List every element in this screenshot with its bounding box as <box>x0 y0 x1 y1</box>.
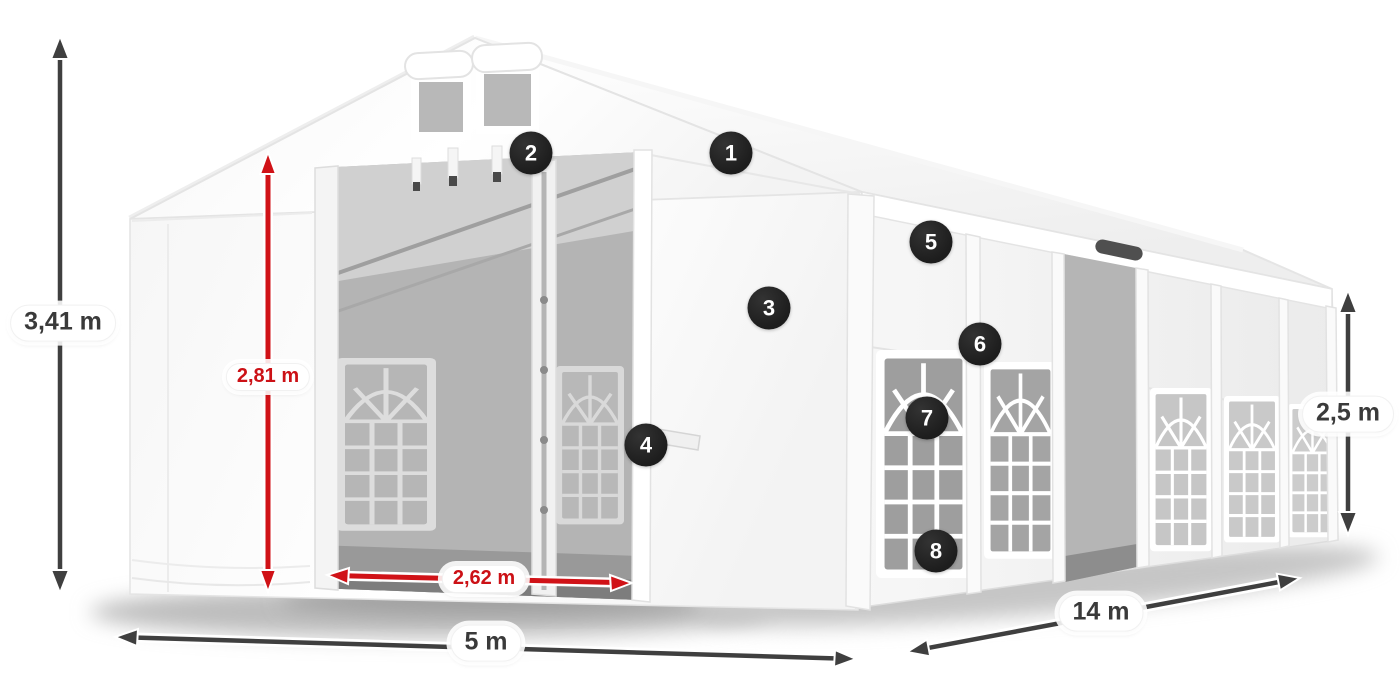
front-entrance-interior <box>315 150 700 602</box>
callout-badge-1[interactable]: 1 <box>710 132 753 175</box>
callout-badge-8[interactable]: 8 <box>915 530 958 573</box>
tent-illustration <box>0 0 1400 700</box>
callout-badge-5[interactable]: 5 <box>910 221 953 264</box>
vent-window <box>415 78 467 136</box>
rolled-cover <box>404 50 473 80</box>
side-window <box>984 362 1057 559</box>
interior-window <box>336 358 436 531</box>
interior-window <box>556 366 624 524</box>
dimension-label-ridge-height: 3,41 m <box>10 305 116 342</box>
side-doorway <box>1064 254 1137 582</box>
side-window <box>1150 388 1212 551</box>
dimension-label-side-height: 2,5 m <box>1302 396 1394 433</box>
callout-badge-6[interactable]: 6 <box>959 323 1002 366</box>
rolled-cover <box>471 42 542 73</box>
callout-badge-2[interactable]: 2 <box>510 132 553 175</box>
side-window <box>1224 396 1280 542</box>
dimension-label-entrance-width: 2,62 m <box>442 565 526 593</box>
dimension-label-tent-length: 14 m <box>1059 595 1144 632</box>
diagram-canvas: 3,41 m 2,81 m 2,62 m 5 m 14 m 2,5 m 1 2 … <box>0 0 1400 700</box>
vent-window <box>480 70 535 130</box>
callout-badge-4[interactable]: 4 <box>625 424 668 467</box>
callout-badge-3[interactable]: 3 <box>748 287 791 330</box>
callout-badge-7[interactable]: 7 <box>906 397 949 440</box>
dimension-label-tent-width: 5 m <box>450 625 521 662</box>
dimension-label-entrance-height: 2,81 m <box>226 363 310 391</box>
